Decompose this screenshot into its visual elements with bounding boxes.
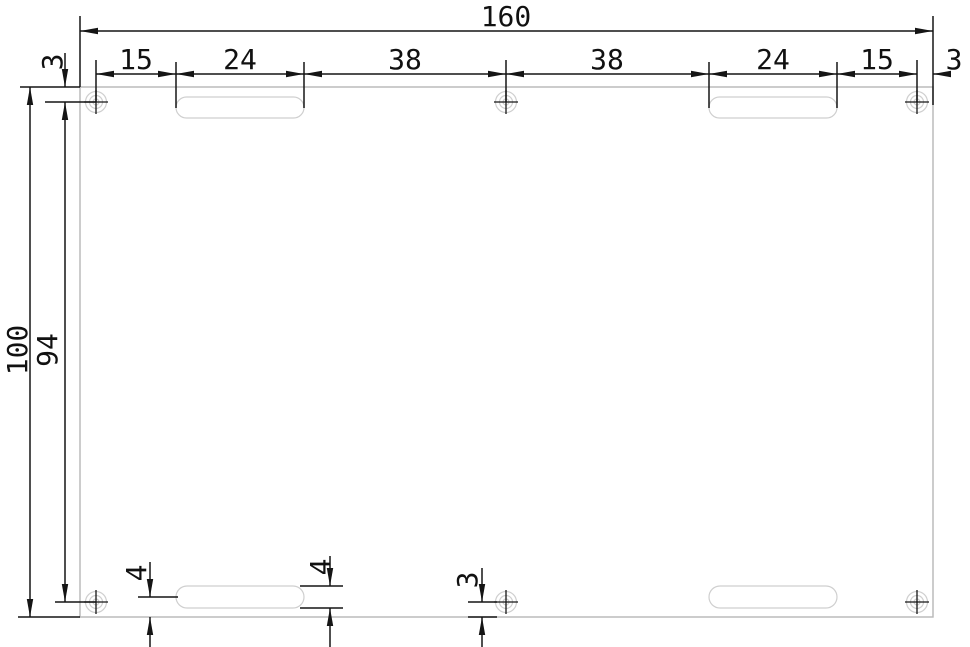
extension-lines bbox=[18, 16, 933, 617]
arrowhead bbox=[819, 71, 837, 77]
dim-label-slot-height: 4 bbox=[304, 559, 337, 576]
arrowhead bbox=[80, 28, 98, 34]
arrowhead bbox=[709, 71, 727, 77]
slot-bottom-left bbox=[176, 586, 304, 608]
drawing-canvas: 160 15 24 38 38 24 15 3 100 94 3 4 4 3 bbox=[0, 0, 970, 647]
arrowhead bbox=[62, 69, 68, 87]
arrowhead bbox=[147, 617, 153, 635]
arrowhead bbox=[62, 584, 68, 602]
arrowhead bbox=[27, 599, 33, 617]
arrowhead bbox=[899, 71, 917, 77]
dim-label-overall-height: 100 bbox=[1, 325, 34, 376]
dim-label-chain-24-left: 24 bbox=[223, 43, 257, 76]
arrowhead bbox=[62, 102, 68, 120]
arrowhead bbox=[158, 71, 176, 77]
arrowhead bbox=[304, 71, 322, 77]
technical-drawing: 160 15 24 38 38 24 15 3 100 94 3 4 4 3 bbox=[0, 0, 970, 647]
arrowhead bbox=[286, 71, 304, 77]
hole-bottom-center bbox=[494, 590, 518, 614]
dim-label-top-offset: 3 bbox=[36, 54, 69, 71]
arrowhead bbox=[176, 71, 194, 77]
arrowhead bbox=[488, 71, 506, 77]
dim-label-chain-15-left: 15 bbox=[119, 43, 153, 76]
dim-label-chain-38-right: 38 bbox=[590, 43, 624, 76]
dim-label-slot-center-offset: 4 bbox=[120, 565, 153, 582]
slot-bottom-right bbox=[709, 586, 837, 608]
dim-label-chain-24-right: 24 bbox=[756, 43, 790, 76]
dimension-lines bbox=[30, 31, 951, 647]
dim-label-chain-15-right: 15 bbox=[860, 43, 894, 76]
arrowhead bbox=[691, 71, 709, 77]
arrowhead bbox=[96, 71, 114, 77]
slot-top-right bbox=[709, 97, 837, 118]
arrowhead bbox=[27, 87, 33, 105]
dim-label-bottom-hole-offset: 3 bbox=[451, 572, 484, 589]
dim-label-chain-3-right: 3 bbox=[946, 43, 963, 76]
hole-bottom-right bbox=[905, 590, 929, 614]
dim-label-chain-38-left: 38 bbox=[388, 43, 422, 76]
arrowheads bbox=[27, 28, 951, 635]
arrowhead bbox=[506, 71, 524, 77]
dim-label-overall-width: 160 bbox=[481, 0, 532, 33]
arrowhead bbox=[837, 71, 855, 77]
slot-top-left bbox=[176, 97, 304, 118]
dim-label-hole-span: 94 bbox=[31, 333, 64, 367]
plate-outline bbox=[80, 87, 933, 617]
arrowhead bbox=[479, 617, 485, 635]
arrowhead bbox=[915, 28, 933, 34]
